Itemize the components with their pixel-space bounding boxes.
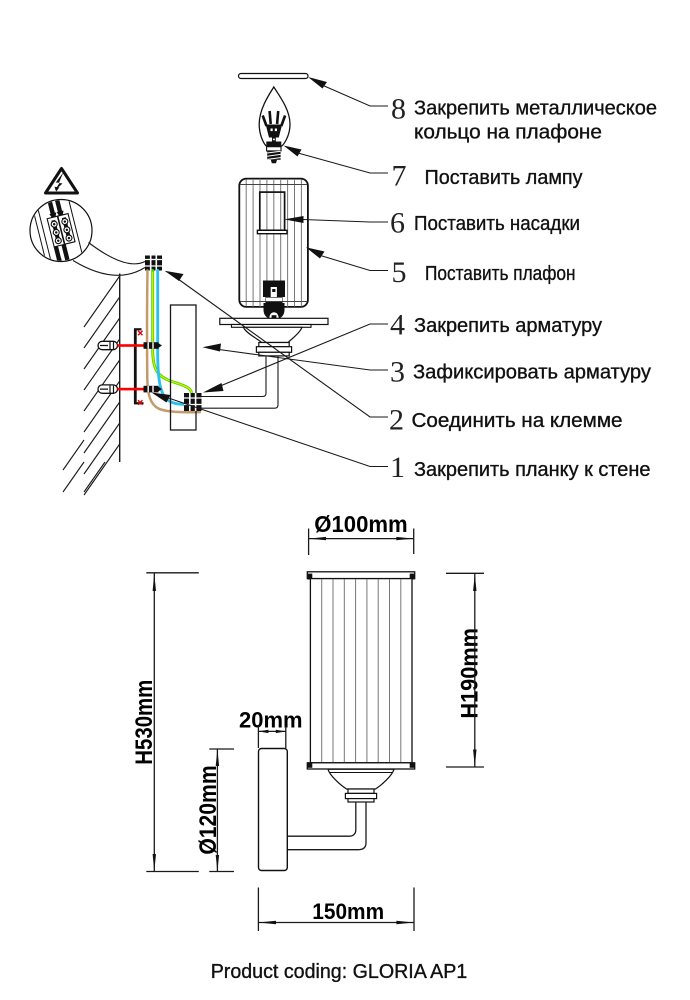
svg-text:кольцо на плафоне: кольцо на плафоне	[414, 122, 602, 144]
svg-text:Зафиксировать арматуру: Зафиксировать арматуру	[413, 362, 651, 384]
svg-text:3: 3	[390, 356, 405, 389]
svg-text:Поставить плафон: Поставить плафон	[425, 263, 576, 285]
svg-text:Product coding: GLORIA AP1: Product coding: GLORIA AP1	[211, 961, 468, 983]
svg-text:2: 2	[389, 404, 404, 437]
svg-text:Поставить лампу: Поставить лампу	[425, 167, 583, 189]
svg-text:Закрепить планку к стене: Закрепить планку к стене	[414, 459, 651, 481]
svg-text:Закрепить металлическое: Закрепить металлическое	[414, 98, 657, 120]
svg-text:Закрепить арматуру: Закрепить арматуру	[414, 315, 602, 337]
svg-text:20mm: 20mm	[239, 708, 303, 733]
svg-text:8: 8	[391, 93, 406, 126]
svg-text:H190mm: H190mm	[457, 628, 484, 719]
svg-text:4: 4	[390, 309, 405, 342]
svg-text:6: 6	[390, 207, 405, 240]
svg-text:5: 5	[392, 256, 407, 289]
svg-text:7: 7	[392, 160, 407, 193]
svg-text:Поставить насадки: Поставить насадки	[414, 213, 580, 235]
svg-text:Соединить на клемме: Соединить на клемме	[412, 410, 623, 432]
svg-text:Ø100mm: Ø100mm	[314, 511, 407, 537]
svg-text:150mm: 150mm	[312, 899, 384, 924]
svg-text:1: 1	[390, 451, 405, 484]
